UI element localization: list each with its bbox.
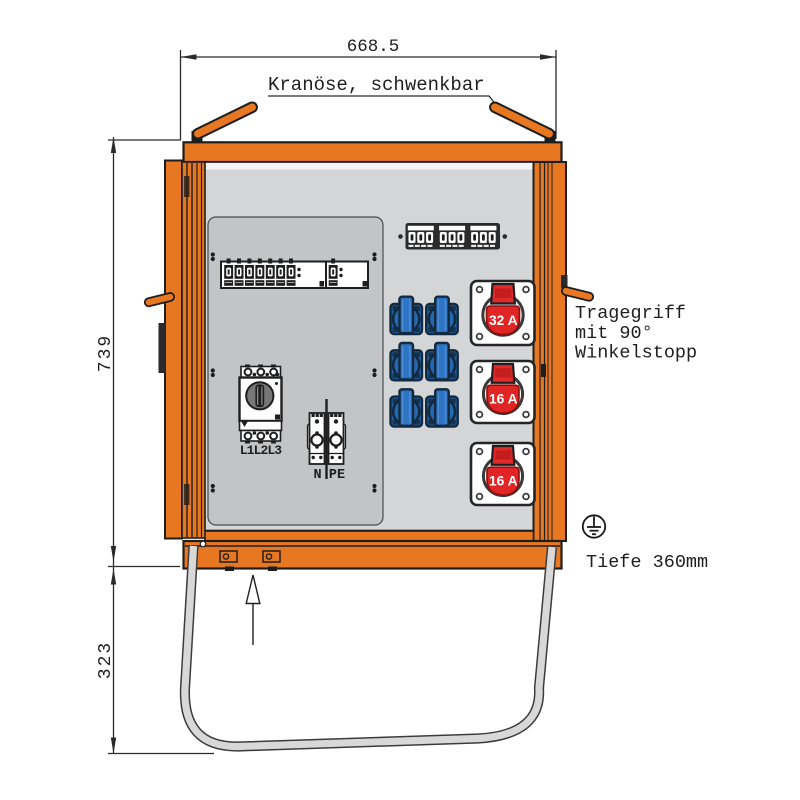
svg-text:16 A: 16 A: [489, 392, 518, 407]
svg-text:PE: PE: [329, 468, 345, 483]
svg-text:Kranöse, schwenkbar: Kranöse, schwenkbar: [268, 74, 485, 96]
svg-text:Winkelstopp: Winkelstopp: [575, 343, 697, 364]
svg-text:Tiefe 360mm: Tiefe 360mm: [586, 552, 708, 573]
svg-text:16 A: 16 A: [489, 474, 518, 489]
svg-text:323: 323: [96, 641, 116, 679]
svg-text:L1L2L3: L1L2L3: [240, 443, 283, 458]
svg-text:N: N: [313, 468, 321, 483]
svg-text:32 A: 32 A: [489, 313, 518, 328]
svg-text:Tragegriff: Tragegriff: [575, 303, 686, 324]
svg-text:668.5: 668.5: [347, 37, 400, 57]
svg-text:739: 739: [96, 334, 116, 372]
svg-text:mit 90°: mit 90°: [575, 323, 653, 344]
